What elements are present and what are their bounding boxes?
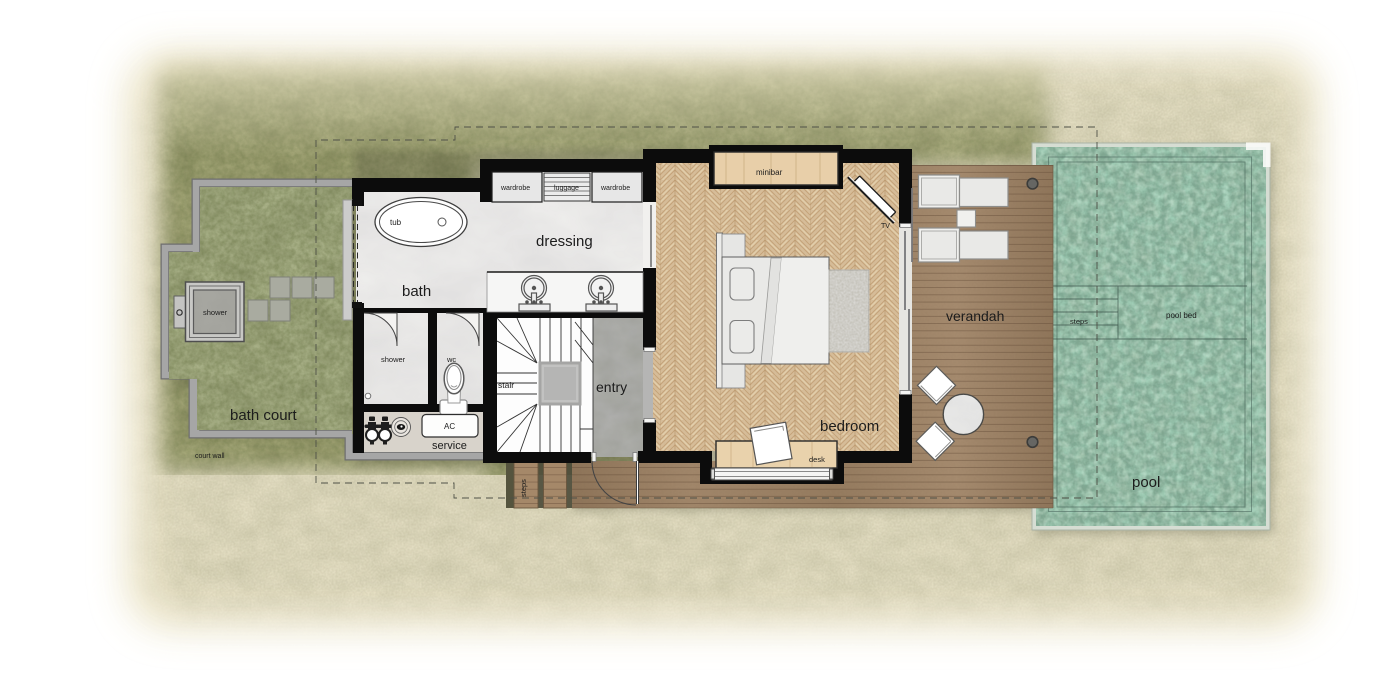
- svg-text:steps: steps: [1070, 317, 1088, 326]
- svg-text:dressing: dressing: [536, 233, 593, 250]
- svg-text:pool: pool: [1132, 474, 1160, 491]
- svg-text:TV: TV: [881, 223, 890, 230]
- svg-text:bath court: bath court: [230, 407, 298, 424]
- svg-text:service: service: [432, 440, 467, 452]
- svg-text:verandah: verandah: [946, 308, 1004, 324]
- svg-text:entry: entry: [596, 379, 627, 395]
- svg-text:shower: shower: [203, 308, 228, 317]
- svg-text:minibar: minibar: [756, 168, 783, 177]
- svg-text:desk: desk: [809, 455, 825, 464]
- svg-text:steps: steps: [519, 479, 528, 497]
- svg-text:wardrobe: wardrobe: [600, 185, 630, 192]
- svg-text:AC: AC: [444, 422, 455, 431]
- svg-text:shower: shower: [381, 355, 406, 364]
- svg-text:luggage: luggage: [554, 185, 579, 192]
- svg-text:stair: stair: [498, 380, 514, 390]
- svg-text:tub: tub: [390, 218, 402, 227]
- svg-text:bedroom: bedroom: [820, 418, 879, 435]
- svg-text:pool bed: pool bed: [1166, 311, 1197, 320]
- svg-text:wardrobe: wardrobe: [500, 185, 530, 192]
- svg-text:wc: wc: [446, 355, 456, 364]
- svg-text:bath: bath: [402, 283, 431, 300]
- svg-text:court wall: court wall: [195, 453, 225, 460]
